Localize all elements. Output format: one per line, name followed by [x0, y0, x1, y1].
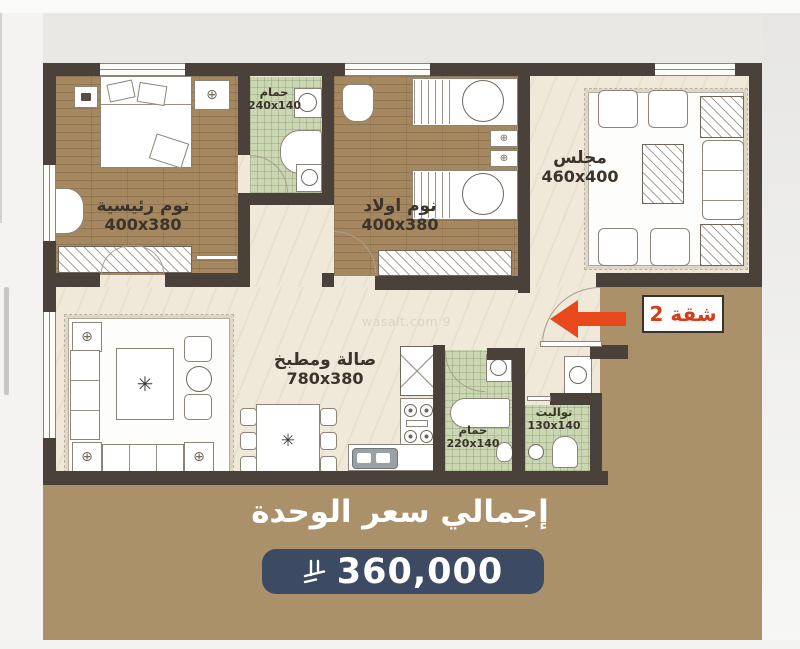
- plant-icon: ✳: [281, 431, 295, 451]
- kitchen-sink: [352, 448, 398, 469]
- fan-icon: ⊕: [500, 153, 508, 164]
- sofa-bottom: [102, 444, 184, 472]
- wall-master-bottom-a: [43, 273, 100, 287]
- right-strip: [762, 13, 800, 649]
- corner-speaker: ⊕: [184, 442, 214, 472]
- plant-icon: ✳: [137, 372, 154, 396]
- sofa-left: [70, 350, 100, 440]
- top-strip: [0, 0, 800, 13]
- stove-burner: [420, 404, 433, 417]
- corner-speaker: ⊕: [72, 442, 102, 472]
- wardrobe-kids: [378, 250, 512, 276]
- threshold: [196, 255, 238, 260]
- ceiling-fan-box: ⊕: [194, 80, 230, 110]
- fridge: [400, 346, 434, 396]
- corner-speaker: ⊕: [72, 322, 102, 352]
- stove-burner: [404, 404, 417, 417]
- stove-shelf: [406, 420, 428, 427]
- kids-chair: [342, 84, 374, 122]
- room-size: 130x140: [524, 420, 584, 433]
- sink: [569, 366, 587, 384]
- bed-line: [101, 104, 191, 105]
- room-size: 400x380: [68, 216, 218, 235]
- price-badge: 360,000: [262, 549, 544, 594]
- window: [43, 312, 56, 438]
- pillow: [137, 82, 168, 106]
- armchair: [184, 394, 212, 420]
- wall-exterior-bottom: [43, 471, 608, 485]
- room-label-kids: نوم اولاد 400x380: [325, 196, 475, 235]
- wall-kids-left-stub: [322, 273, 334, 287]
- edge-line: [0, 13, 2, 223]
- floorplan-listing-image: ⊕ ⊕ ⊕ ⊕ ⊕ ⊕ ✳ ✳: [0, 0, 800, 649]
- washer-drum: [301, 169, 318, 186]
- wall-kids-bottom: [375, 276, 530, 290]
- room-label-toilet: تواليت 130x140: [524, 406, 584, 433]
- stove-burner: [404, 430, 417, 443]
- room-name: مجلس: [520, 148, 640, 168]
- room-name: تواليت: [524, 406, 584, 420]
- dining-chair: [240, 432, 257, 450]
- corner-table: [700, 224, 744, 266]
- fan-icon: ⊕: [206, 87, 218, 103]
- room-size: 780x380: [255, 370, 395, 389]
- wall-bath-top-bottom: [238, 193, 334, 205]
- fan-icon: ⊕: [81, 449, 93, 465]
- wall-majlis-right: [749, 63, 762, 287]
- room-name: صالة ومطبخ: [255, 350, 395, 370]
- dining-chair: [240, 408, 257, 426]
- room-label-majlis: مجلس 460x400: [520, 148, 640, 187]
- bed-stripes: [414, 80, 454, 124]
- window: [345, 63, 430, 76]
- apartment-tag-label: شقة 2: [649, 302, 716, 326]
- center-table: ✳: [116, 348, 174, 420]
- armchair: [598, 90, 638, 128]
- wall-kitchen: [433, 345, 445, 471]
- toilet-door-leaf: [527, 396, 551, 401]
- nightstand: ⊕: [490, 130, 518, 147]
- saudi-riyal-icon: [303, 559, 327, 585]
- apartment-tag: شقة 2: [642, 295, 724, 333]
- wall-toilet-top: [550, 393, 590, 405]
- room-size: 400x380: [325, 216, 475, 235]
- armchair: [598, 228, 638, 266]
- room-size: 460x400: [520, 168, 640, 187]
- dining-table: ✳: [256, 404, 320, 478]
- bottom-strip: [0, 640, 800, 649]
- sofa-three-seat: [702, 140, 744, 220]
- coffee-table: [642, 144, 684, 204]
- round-side-table: [186, 366, 212, 392]
- fan-icon: ⊕: [500, 133, 508, 144]
- armchair: [184, 336, 212, 362]
- armchair: [648, 90, 688, 128]
- window: [43, 165, 56, 241]
- room-size: 220x140: [443, 438, 503, 451]
- wall-entry-stub: [590, 345, 628, 359]
- nightstand: ⊕: [490, 150, 518, 167]
- stove-burner: [420, 430, 433, 443]
- room-name: نوم رئيسية: [68, 196, 218, 216]
- room-label-hall: صالة ومطبخ 780x380: [255, 350, 395, 389]
- wall-bath-bottom-top: [487, 348, 525, 360]
- sink-basin: [376, 453, 390, 463]
- wall-master-bottom-b: [165, 273, 250, 287]
- entry-arrow-icon: [548, 298, 626, 340]
- sink-basin: [357, 453, 371, 463]
- room-name: حمام: [248, 86, 300, 100]
- sink: [490, 359, 507, 376]
- room-label-bath-bottom: حمام 220x140: [443, 424, 503, 451]
- price-amount: 360,000: [337, 552, 503, 592]
- fan-icon: ⊕: [193, 449, 205, 465]
- sink: [528, 444, 544, 460]
- wall-kids-left: [322, 63, 334, 200]
- armchair: [650, 228, 690, 266]
- tv-cabinet: [74, 86, 98, 108]
- room-label-bath-top: حمام 240x140: [248, 86, 300, 113]
- toilet-seat: [552, 436, 578, 468]
- window: [655, 63, 735, 76]
- room-label-master: نوم رئيسية 400x380: [68, 196, 218, 235]
- price-title: إجمالي سعر الوحدة: [150, 494, 650, 530]
- quilt-circle: [462, 80, 504, 122]
- room-name: نوم اولاد: [325, 196, 475, 216]
- dining-chair: [320, 432, 337, 450]
- wall-toilet-right: [590, 393, 602, 485]
- corner-table: [700, 96, 744, 138]
- tv-icon: [81, 93, 91, 101]
- room-name: حمام: [443, 424, 503, 438]
- scroll-artifact: [4, 287, 9, 395]
- window: [100, 63, 185, 76]
- watermark: wasalt.com 9: [362, 314, 451, 329]
- fan-icon: ⊕: [81, 329, 93, 345]
- room-size: 240x140: [248, 100, 300, 113]
- wall-majlis-bottom: [596, 273, 762, 287]
- dining-chair: [320, 408, 337, 426]
- entry-door-leaf: [540, 341, 602, 347]
